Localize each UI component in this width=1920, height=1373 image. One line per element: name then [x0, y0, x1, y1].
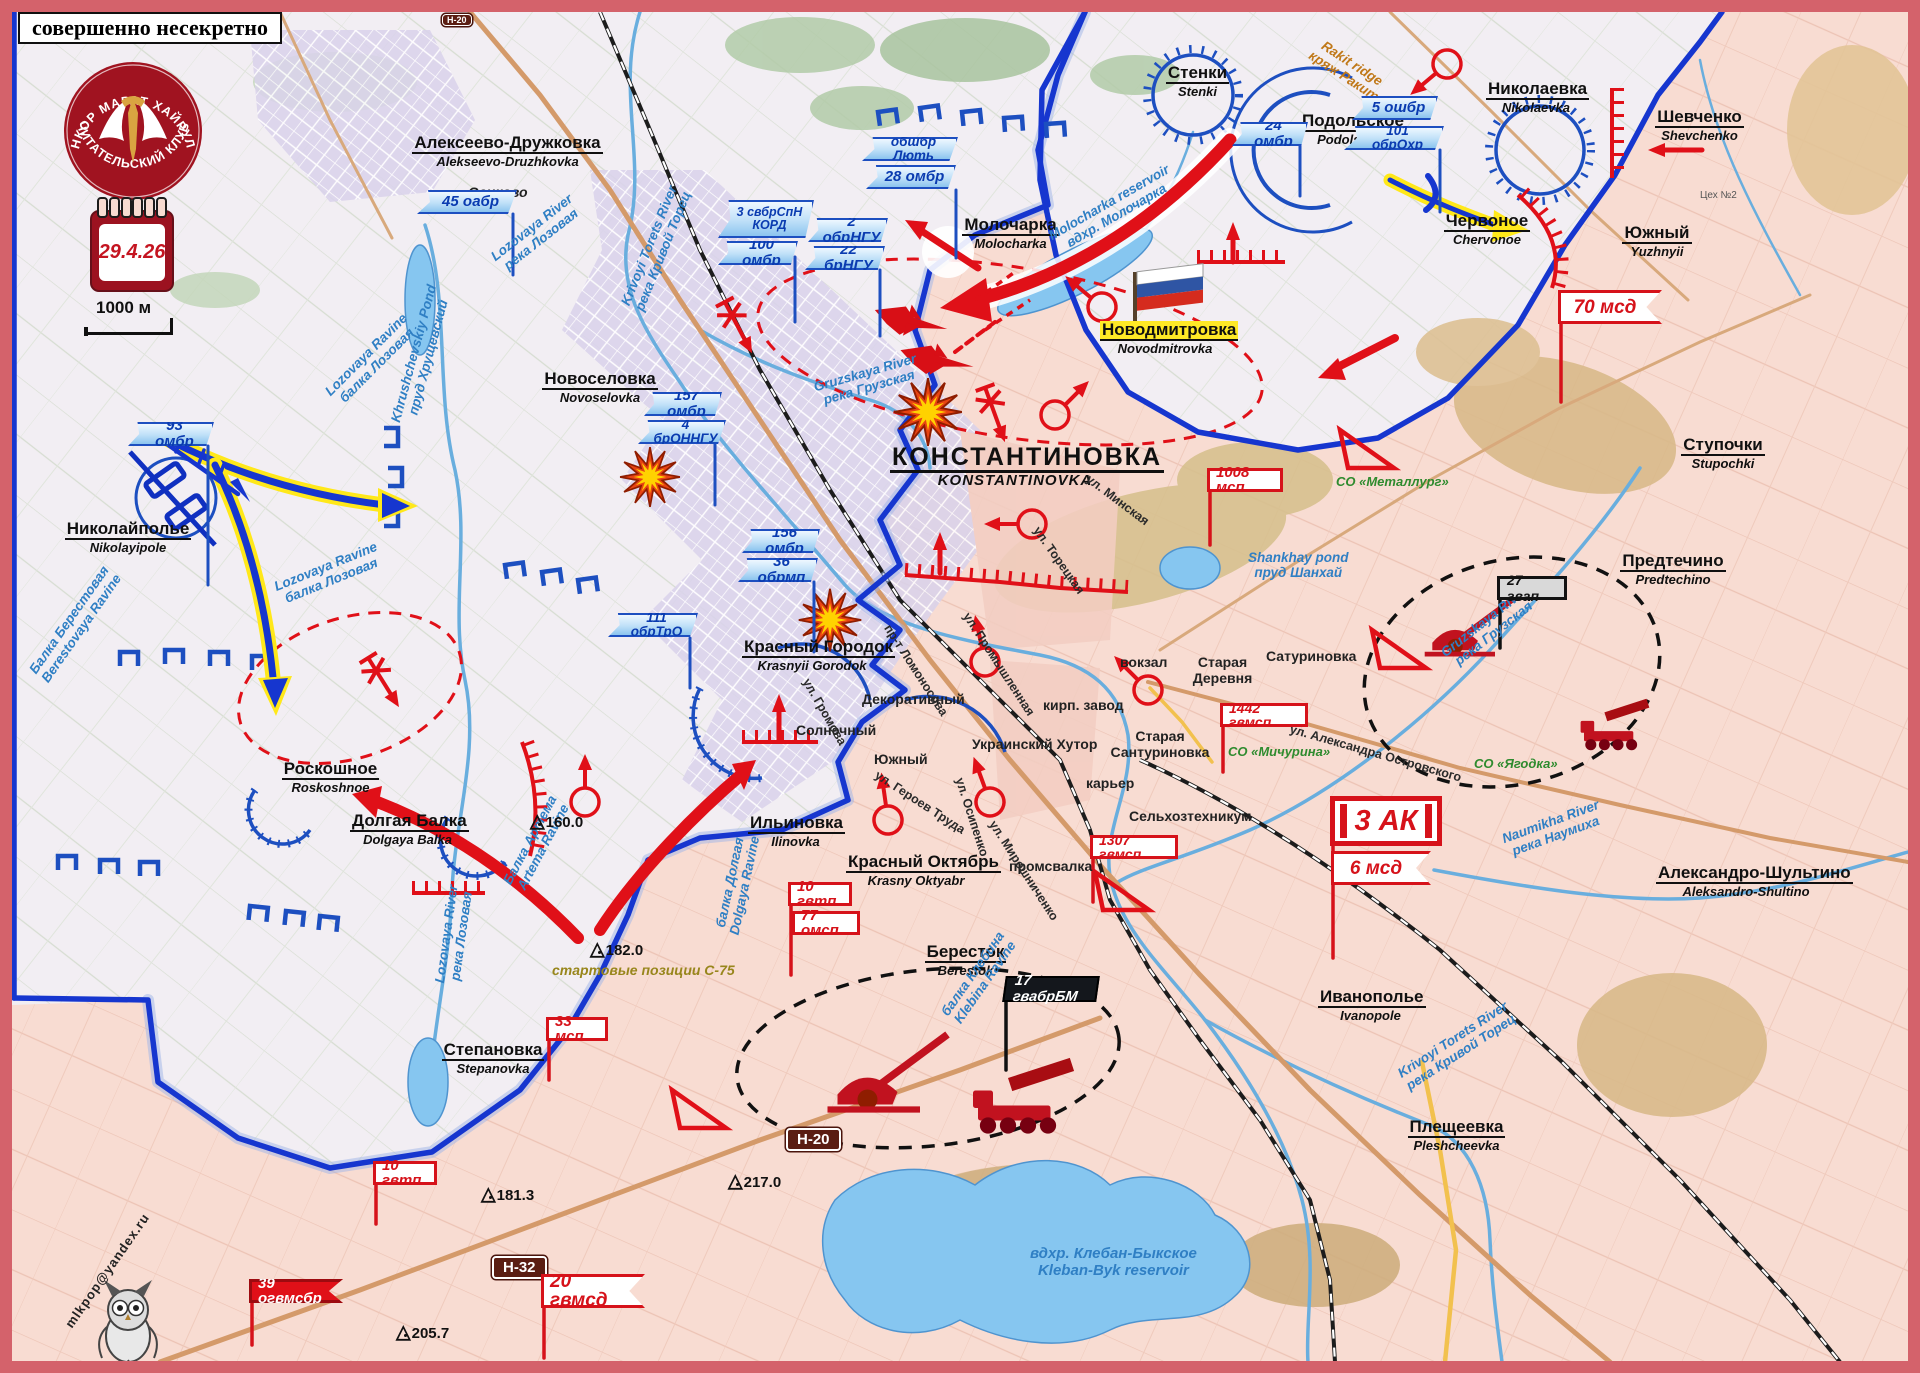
- date-calendar-icon: 29.4.26: [90, 210, 174, 292]
- place-ivanopole: ИванопольеIvanopole: [1318, 988, 1423, 1025]
- elevation-icon: [728, 1172, 743, 1191]
- place-karyer: карьер: [1086, 775, 1134, 791]
- ru-unit-6-msd: 6 мсд: [1331, 851, 1431, 885]
- place-stupochki: СтупочкиStupochki: [1678, 436, 1768, 473]
- ru-unit-10-gvtp-2: 10 гвтп: [373, 1161, 437, 1185]
- garden-michurina: СО «Мичурина»: [1228, 744, 1330, 759]
- place-saturinovka: Сатуриновка: [1266, 648, 1356, 664]
- ua-unit-28-ombr: 28 омбр: [866, 165, 956, 189]
- ua-unit-5-oshbr: 5 ошбр: [1352, 96, 1438, 120]
- place-tsekh-2: Цех №2: [1700, 190, 1737, 201]
- place-ukrainsky-khutor: Украинский Хутор: [972, 736, 1097, 752]
- scale-label: 1000 м: [96, 298, 151, 318]
- place-nikolaevka: НиколаевкаNikolaevka: [1486, 80, 1586, 117]
- scale-bar: [84, 318, 173, 335]
- roadsign-h20-top: Н-20: [442, 14, 472, 26]
- club-logo: ВОЕНКОР МАРАТ ХАЙРУЛЛИН ЧИТАТЕЛЬСКИЙ КЛУ…: [64, 62, 202, 200]
- place-krasny-oktyabr: Красный ОктябрьKrasny Oktyabr: [846, 853, 986, 890]
- place-novodmitrovka: НоводмитровкаNovodmitrovka: [1100, 321, 1230, 358]
- place-selkhoztekhnikum: Сельхозтехникум: [1129, 808, 1251, 824]
- ua-unit-24-ombr: 24 омбр: [1232, 122, 1308, 146]
- map-canvas: ВОЕНКОР МАРАТ ХАЙРУЛЛИН ЧИТАТЕЛЬСКИЙ КЛУ…: [0, 0, 1920, 1373]
- water-shankhay-pond: Shankhay pondпруд Шанхай: [1248, 550, 1349, 580]
- ru-unit-1442-gvmsp: 1442 гвмсп: [1220, 703, 1308, 727]
- place-stenki: СтенкиStenki: [1160, 64, 1235, 101]
- place-dolgaya-balka: Долгая БалкаDolgaya Balka: [350, 812, 465, 849]
- ru-unit-27-gvap: 27 гвап: [1497, 576, 1567, 600]
- place-kirp-zavod: кирп. завод: [1043, 697, 1124, 713]
- place-nikolayipole: НиколайпольеNikolayipole: [58, 520, 198, 557]
- garden-yagodka: СО «Ягодка»: [1474, 756, 1558, 771]
- elevation-160: 160.0: [530, 812, 583, 831]
- place-roskoshnoe: РоскошноеRoskoshnoe: [278, 760, 383, 797]
- place-predtechino: ПредтечиноPredtechino: [1618, 552, 1728, 589]
- ua-unit-4-bronngu: 4 брОННГУ: [638, 420, 726, 444]
- elevation-181: 181.3: [481, 1185, 534, 1204]
- place-yuzhny-district: Южный: [874, 751, 928, 767]
- roadsign-h32: Н-32: [492, 1256, 547, 1279]
- elevation-icon: [396, 1323, 411, 1342]
- place-pleshcheevka: ПлещеевкаPleshcheevka: [1404, 1118, 1509, 1155]
- place-alekseevo-druzhkovka: Алексеево-ДружковкаAlekseevo-Druzhkovka: [410, 134, 605, 171]
- classification-banner: совершенно несекретно: [18, 12, 282, 44]
- ru-unit-17-gvabrbm: 17 гвабрБМ: [1002, 976, 1100, 1002]
- ua-unit-156-ombr: 156 омбр: [742, 529, 820, 553]
- place-dekorativny: Декоративный: [862, 691, 965, 707]
- place-novoselovka: НовоселовкаNovoselovka: [540, 370, 660, 407]
- ru-unit-77-omsp: 77 омсп: [792, 911, 860, 935]
- ua-unit-100-ombr: 100 омбр: [718, 241, 798, 265]
- place-krasny-gorodok: Красный ГородокKrasnyii Gorodok: [742, 638, 882, 675]
- elevation-icon: [530, 812, 545, 831]
- water-kleban-byk: вдхр. Клебан-БыкскоеKleban-Byk reservoir: [1030, 1246, 1197, 1280]
- ru-unit-1008-msp: 1008 мсп: [1207, 468, 1283, 492]
- place-vokzal: вокзал: [1120, 654, 1167, 670]
- ru-unit-1307-gvmsp: 1307 гвмсп: [1090, 835, 1178, 859]
- ua-unit-111-obrtro: 111 обрТрО: [608, 613, 698, 637]
- ru-unit-10-gvtp: 10 гвтп: [788, 882, 852, 906]
- place-ilinovka: ИльиновкаIlinovka: [748, 814, 843, 851]
- ru-unit-39-ogvmsbr: 39 огвмсбр: [249, 1279, 343, 1303]
- place-stepanovka: СтепановкаStepanovka: [438, 1041, 548, 1078]
- place-yuzhnyi-ne: ЮжныйYuzhnyii: [1622, 224, 1692, 261]
- ua-unit-45-oabr: 45 оабр: [417, 190, 517, 214]
- ua-unit-3-svbrspn-kord: 3 свбрСпН КОРД: [718, 200, 814, 238]
- ua-unit-22-brngu: 22 брНГУ: [805, 246, 885, 270]
- roadsign-h20: Н-20: [786, 1128, 841, 1151]
- elevation-icon: [590, 940, 605, 959]
- place-chervonoe: ЧервоноеChervonoe: [1442, 212, 1532, 249]
- ru-unit-33-msp: 33 мсп: [546, 1017, 608, 1041]
- place-molocharka: МолочаркаMolocharka: [958, 216, 1063, 253]
- place-staraya-derevnya: Старая Деревня: [1180, 654, 1265, 686]
- map-artwork: ВОЕНКОР МАРАТ ХАЙРУЛЛИН ЧИТАТЕЛЬСКИЙ КЛУ…: [0, 0, 1920, 1373]
- elevation-217: 217.0: [728, 1172, 781, 1191]
- elevation-205: 205.7: [396, 1323, 449, 1342]
- place-staraya-santurinovka: Старая Сантуриновка: [1100, 728, 1220, 760]
- place-aleksandro-shultino: Александро-ШультиноAleksandro-Shultino: [1656, 864, 1836, 901]
- elevation-icon: [481, 1185, 496, 1204]
- calendar-rings: [97, 197, 167, 218]
- note-s75-positions: стартовые позиции С-75: [552, 962, 735, 978]
- ua-unit-93-ombr: 93 омбр: [128, 422, 214, 446]
- ua-unit-157-ombr: 157 омбр: [644, 392, 722, 416]
- garden-metallurg: СО «Металлург»: [1336, 474, 1449, 489]
- ua-unit-101-obrokhr: 101 обрОхр: [1344, 126, 1444, 150]
- ua-unit-36-obrmp: 36 обрмп: [738, 558, 818, 582]
- ua-unit-obshbr-lyut: обшбр Лють: [862, 137, 958, 161]
- elevation-182: 182.0: [590, 940, 643, 959]
- place-shevchenko: ШевченкоShevchenko: [1652, 108, 1747, 145]
- ua-unit-2-obrngu: 2 обрНГУ: [808, 218, 888, 242]
- date-value: 29.4.26: [99, 224, 165, 281]
- ru-unit-3-ak: 3 АК: [1330, 796, 1442, 846]
